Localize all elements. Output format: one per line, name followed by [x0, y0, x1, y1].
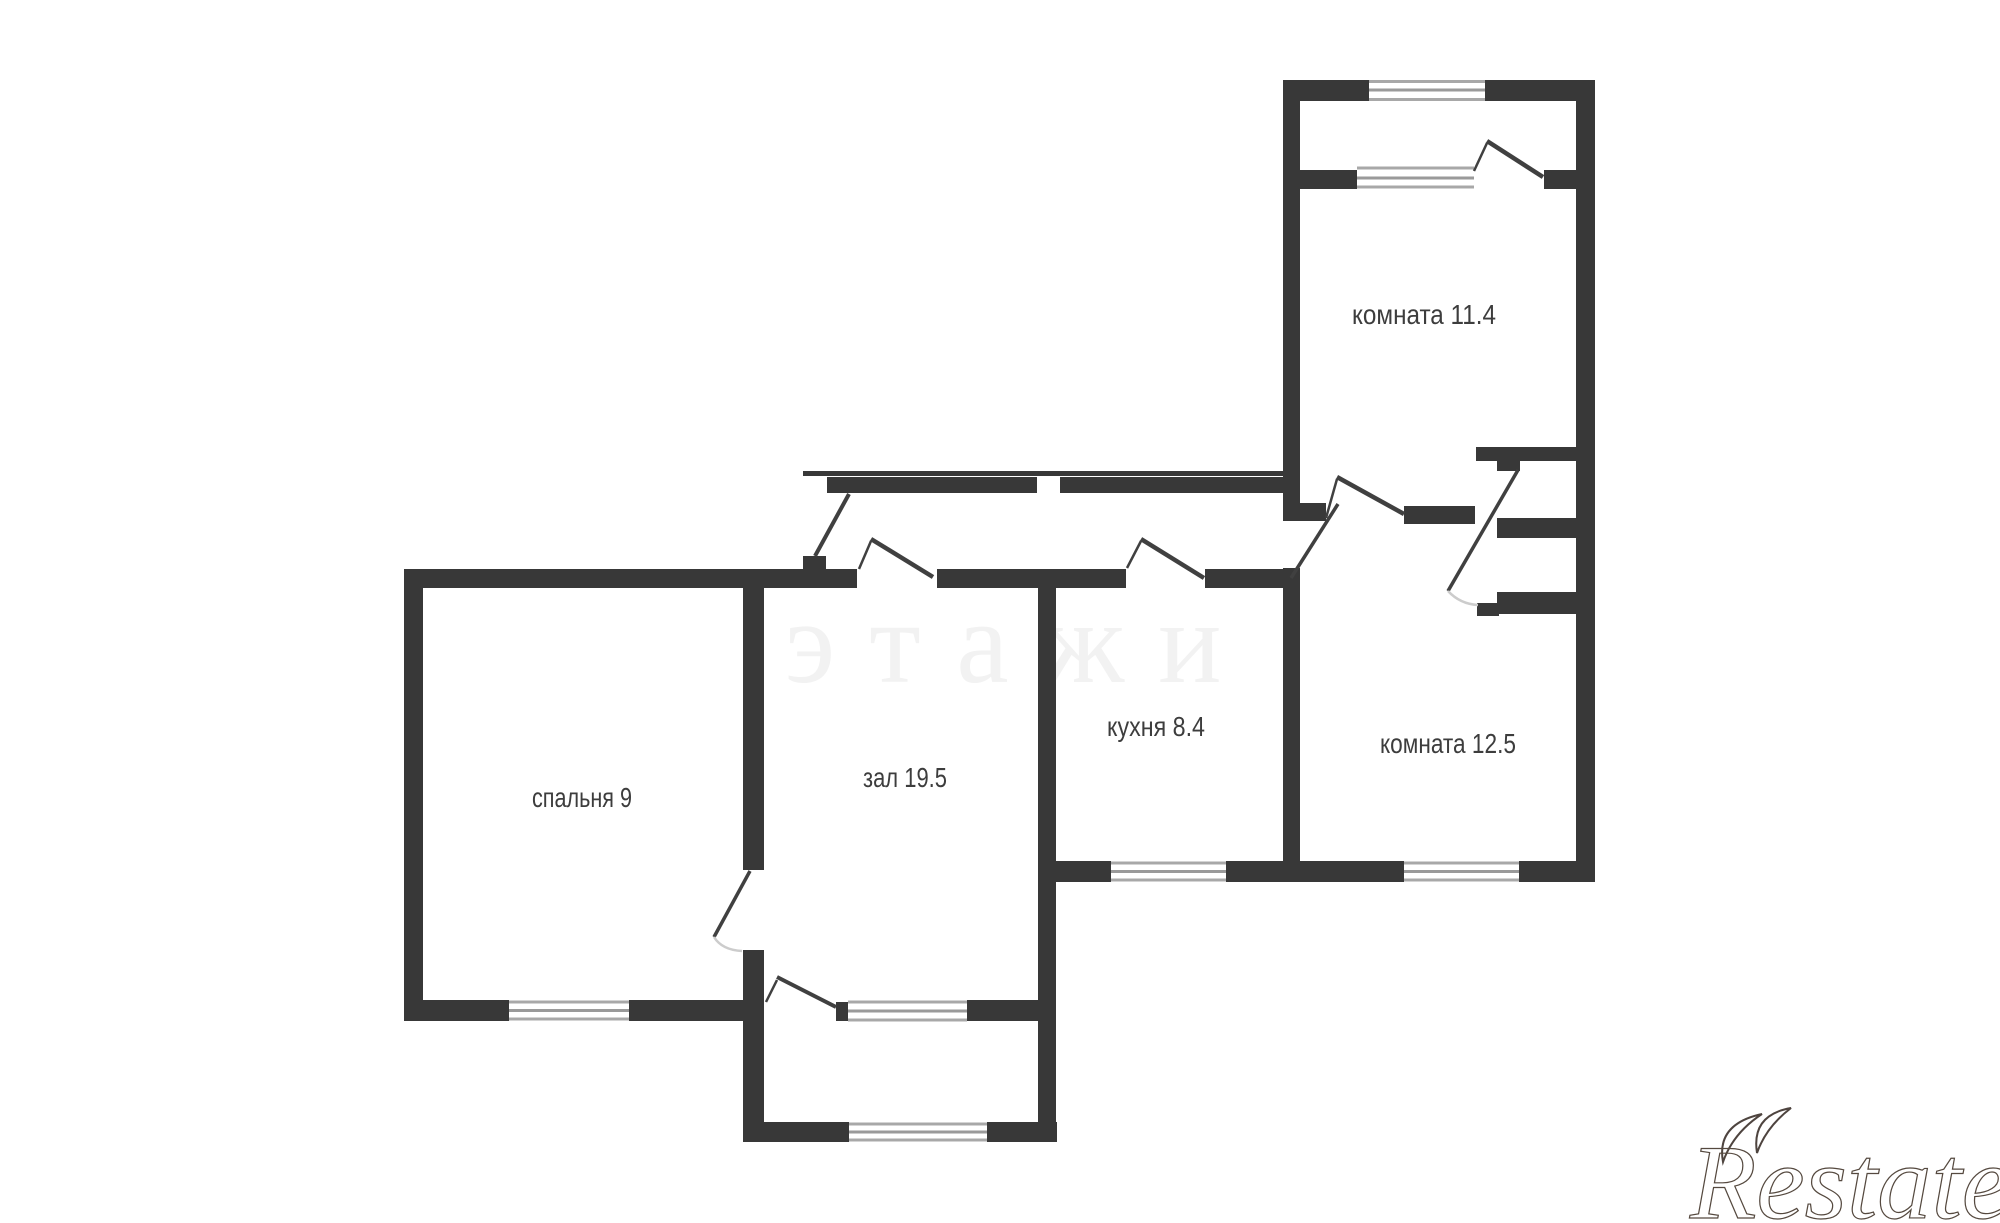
svg-text:спальня 9: спальня 9: [532, 782, 632, 813]
svg-text:комната 11.4: комната 11.4: [1352, 299, 1496, 330]
svg-text:кухня 8.4: кухня 8.4: [1107, 711, 1205, 742]
svg-text:зал 19.5: зал 19.5: [863, 762, 947, 793]
svg-text:Restate: Restate: [1689, 1124, 2000, 1223]
svg-text:комната 12.5: комната 12.5: [1380, 728, 1516, 759]
svg-text:этажи: этажи: [785, 577, 1256, 708]
